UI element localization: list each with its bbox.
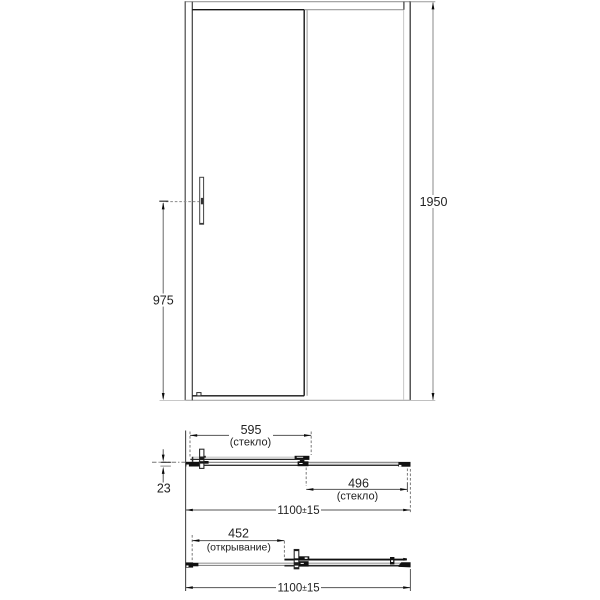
svg-text:(стекло): (стекло) [230, 437, 271, 449]
svg-text:975: 975 [153, 294, 174, 308]
svg-text:(открывание): (открывание) [207, 541, 271, 553]
svg-text:23: 23 [157, 482, 171, 496]
svg-text:(стекло): (стекло) [337, 490, 378, 502]
svg-text:1100±15: 1100±15 [277, 505, 319, 517]
svg-text:452: 452 [228, 527, 249, 541]
svg-text:1950: 1950 [420, 195, 448, 209]
svg-text:1100±15: 1100±15 [277, 583, 319, 595]
svg-text:496: 496 [348, 477, 369, 491]
